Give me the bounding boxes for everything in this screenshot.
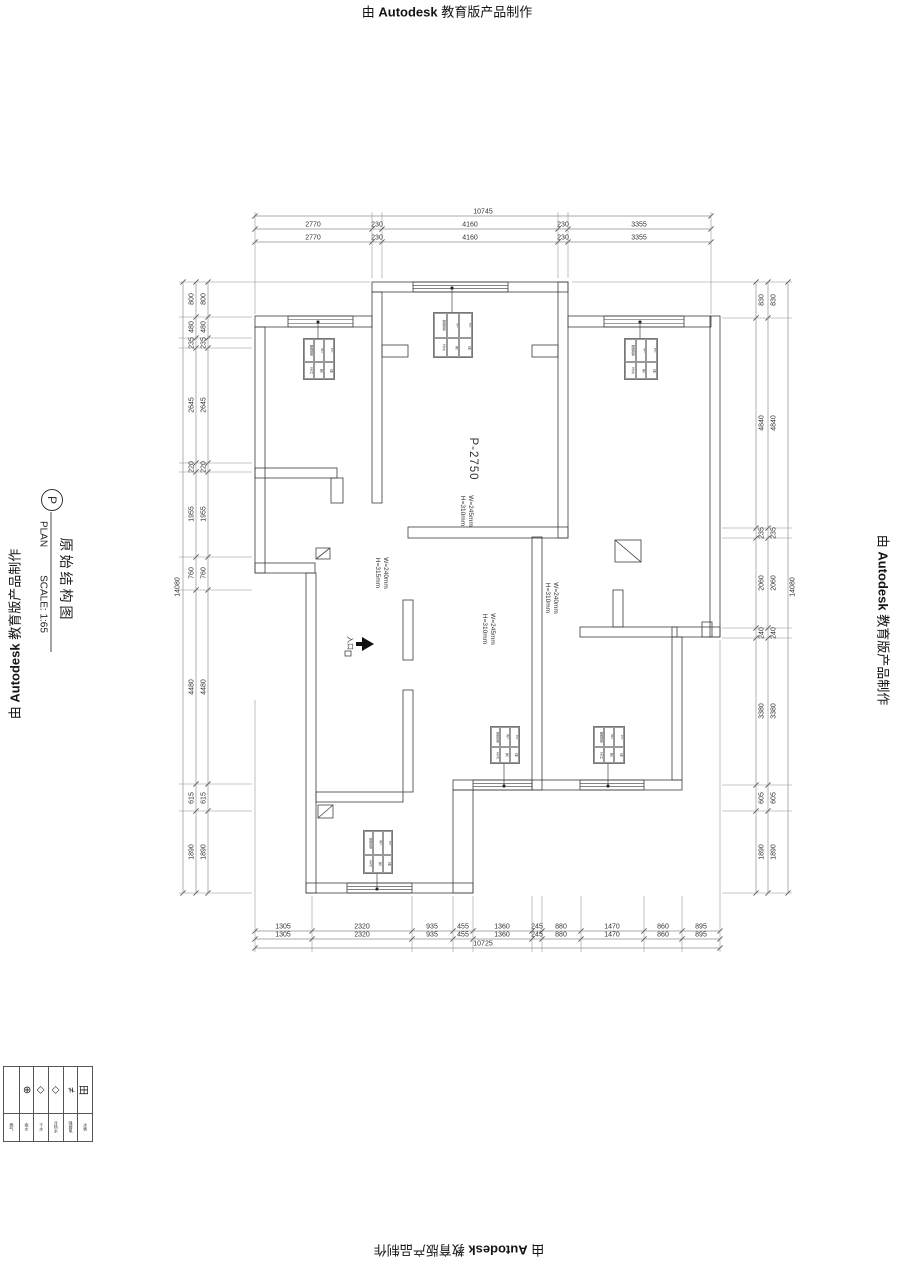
watermark-right: 由 Autodesk 教育版产品制作: [875, 535, 894, 706]
dim-label: 860: [657, 924, 669, 931]
drawing-title: 原始结构图: [56, 538, 76, 623]
legend-item: 田水表: [77, 1067, 92, 1141]
dim-label: 2320: [354, 924, 370, 931]
dim-label: 235: [189, 337, 196, 349]
opening-annotation: W=245mm H=310mm: [480, 613, 496, 645]
dim-label: 4840: [771, 415, 778, 431]
watermark-top: 由 Autodesk 教育版产品制作: [362, 2, 533, 21]
opening-annotation: W=245mm H=310mm: [458, 495, 474, 527]
watermark-bottom: 由 Autodesk 教育版产品制作: [374, 1242, 545, 1261]
legend-item: ⊕雨水: [19, 1067, 34, 1141]
dim-label: 4840: [759, 415, 766, 431]
dim-label: 1470: [604, 924, 620, 931]
opening-annotation: W=240mm H=315mm: [373, 557, 389, 589]
dim-label: 480: [189, 321, 196, 333]
window-tag: 塑钢窗W=H= 平开宽高: [593, 726, 625, 764]
dim-label: 935: [426, 924, 438, 931]
dim-label: 230: [557, 222, 569, 229]
window-tag: 塑钢窗W=H= 平开宽高: [624, 338, 658, 380]
dim-label: 1890: [189, 844, 196, 860]
dim-total-left: 14080: [175, 577, 182, 596]
dim-label: 895: [695, 924, 707, 931]
dim-total-top: 10745: [473, 209, 492, 216]
dim-label: 2645: [201, 397, 208, 413]
dim-label: 4160: [462, 222, 478, 229]
dim-label: 1955: [189, 506, 196, 522]
dim-label: 240: [759, 627, 766, 639]
dim-label: 2320: [354, 932, 370, 939]
dim-label: 605: [759, 792, 766, 804]
dim-label: 230: [557, 235, 569, 242]
dim-label: 760: [189, 567, 196, 579]
dim-label: 1360: [494, 932, 510, 939]
legend-label: 下水: [34, 1113, 48, 1140]
entrance-label: 入口: [345, 636, 353, 650]
dim-label: 760: [201, 567, 208, 579]
legend-item: ◇下水: [33, 1067, 48, 1141]
dim-label: 880: [555, 924, 567, 931]
dim-label: 480: [201, 321, 208, 333]
dim-label: 860: [657, 932, 669, 939]
window-tag: 塑钢窗W=H= 平开宽高: [433, 312, 473, 358]
opening-annotation: W=240mm H=310mm: [543, 582, 559, 614]
dim-label: 2060: [759, 575, 766, 591]
dim-label: 3380: [759, 703, 766, 719]
dim-label: 605: [771, 792, 778, 804]
dim-label: 1470: [604, 932, 620, 939]
dim-label: 2770: [305, 222, 321, 229]
room-label: P-2750: [465, 437, 479, 480]
dim-label: 1890: [759, 844, 766, 860]
dim-label: 615: [201, 792, 208, 804]
dim-label: 220: [189, 461, 196, 473]
dim-label: 1305: [275, 924, 291, 931]
dim-label: 830: [759, 294, 766, 306]
dim-label: 1955: [201, 506, 208, 522]
dim-label: 2770: [305, 235, 321, 242]
dim-label: 2645: [189, 397, 196, 413]
plan-bubble: P: [41, 489, 63, 511]
dim-label: 455: [457, 932, 469, 939]
dim-label: 1890: [771, 844, 778, 860]
dim-total-right: 14080: [790, 577, 797, 596]
dim-label: 1305: [275, 932, 291, 939]
window-tag: 塑钢窗W=H= 平开宽高: [490, 726, 520, 764]
legend-label: 燃气: [4, 1113, 19, 1140]
dim-label: 245: [531, 932, 543, 939]
dim-label: 895: [695, 932, 707, 939]
legend-item: 燃气: [4, 1067, 19, 1141]
dim-label: 2060: [771, 575, 778, 591]
dim-label: 4480: [189, 679, 196, 695]
dim-label: 4160: [462, 235, 478, 242]
dim-label: 220: [201, 461, 208, 473]
watermark-suffix: 教育版产品制作: [441, 5, 532, 20]
dim-label: 1360: [494, 924, 510, 931]
window-tag: 塑钢窗W=H= 平开宽高: [303, 338, 335, 380]
legend-label: 水表: [78, 1113, 92, 1140]
legend-label: 雨水: [20, 1113, 34, 1140]
cad-sheet: { "watermark": { "prefix": "由", "brand":…: [0, 0, 900, 1273]
watermark-left: 由 Autodesk 教育版产品制作: [5, 549, 24, 720]
dim-label: 800: [201, 293, 208, 305]
plan-label: PLAN: [38, 521, 49, 547]
dim-label: 235: [201, 337, 208, 349]
dim-label: 245: [531, 924, 543, 931]
legend-symbol: 田: [62, 1083, 108, 1097]
dim-label: 3380: [771, 703, 778, 719]
dim-total-bottom: 10725: [473, 941, 492, 948]
dim-label: 235: [759, 527, 766, 539]
dim-label: 830: [771, 294, 778, 306]
dim-label: 800: [189, 293, 196, 305]
legend-table: 燃气 ⊕雨水 ◇下水 ◇冷热水 ≠强弱电 田水表: [3, 1066, 93, 1142]
dim-label: 880: [555, 932, 567, 939]
legend-item: ◇冷热水: [48, 1067, 63, 1141]
legend-item: ≠强弱电: [63, 1067, 78, 1141]
legend-label: 强弱电: [64, 1113, 78, 1140]
dim-label: 230: [371, 222, 383, 229]
dim-label: 230: [371, 235, 383, 242]
dim-label: 935: [426, 932, 438, 939]
watermark-brand: Autodesk: [378, 5, 437, 20]
dim-label: 1890: [201, 844, 208, 860]
dim-label: 4480: [201, 679, 208, 695]
dim-label: 3355: [631, 222, 647, 229]
dim-label: 455: [457, 924, 469, 931]
dim-label: 3355: [631, 235, 647, 242]
watermark-prefix: 由: [362, 5, 375, 20]
legend-label: 冷热水: [49, 1113, 63, 1140]
dim-label: 615: [189, 792, 196, 804]
scale-label: SCALE: 1:65: [38, 575, 49, 633]
dim-label: 235: [771, 527, 778, 539]
dim-label: 240: [771, 627, 778, 639]
window-tag: 塑钢窗W=H= 平开宽高: [363, 830, 393, 874]
